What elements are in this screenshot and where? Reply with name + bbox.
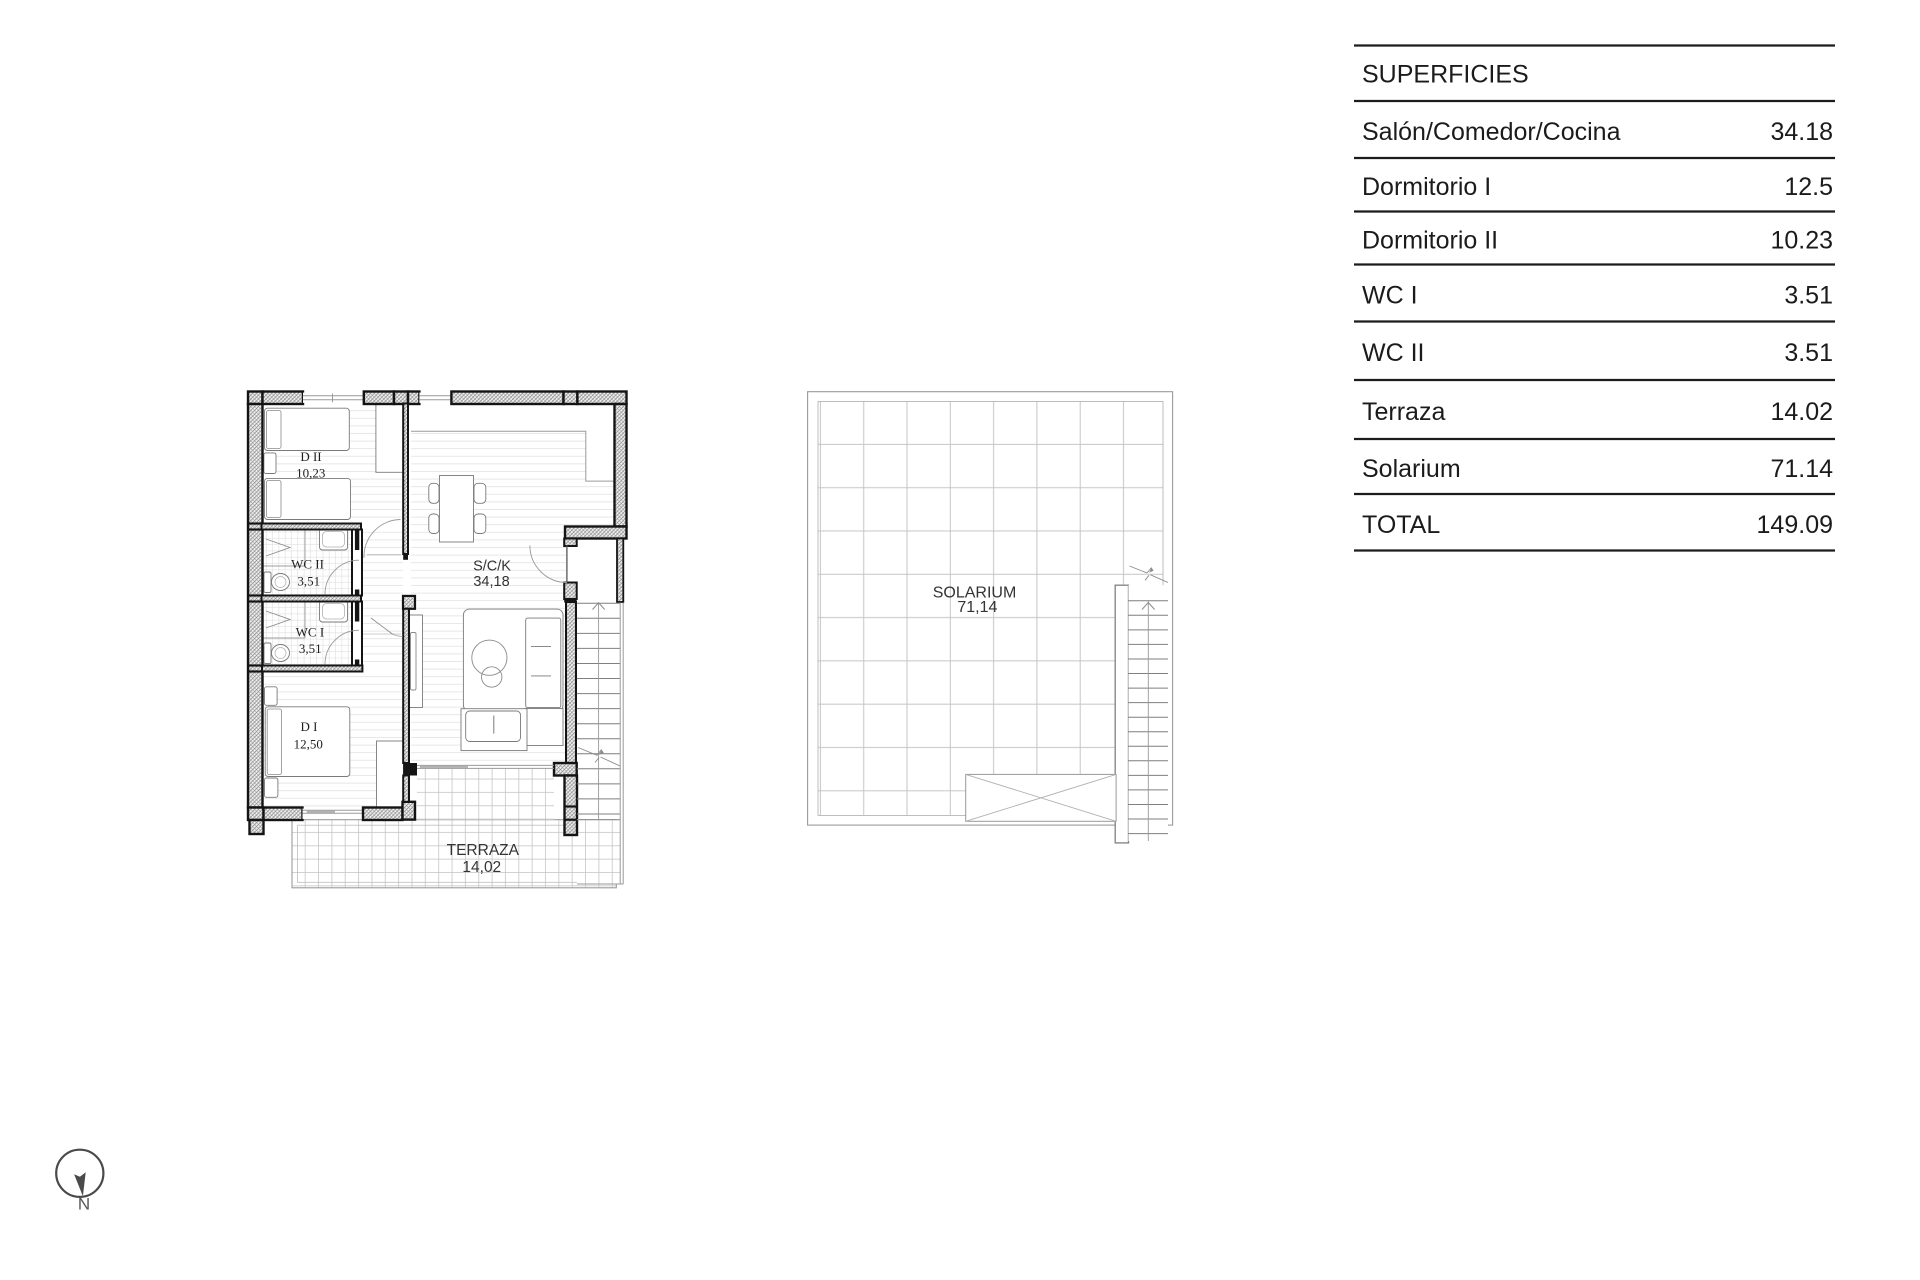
svg-text:34.18: 34.18 [1770, 118, 1833, 146]
svg-text:WC II: WC II [1362, 339, 1425, 367]
svg-text:S/C/K: S/C/K [473, 559, 511, 575]
svg-text:3,51: 3,51 [299, 641, 322, 656]
svg-text:14.02: 14.02 [1770, 398, 1833, 426]
svg-text:12,50: 12,50 [294, 737, 323, 752]
svg-text:Salón/Comedor/Cocina: Salón/Comedor/Cocina [1362, 118, 1621, 146]
svg-text:3,51: 3,51 [297, 574, 320, 589]
svg-text:D I: D I [301, 719, 318, 734]
svg-text:TERRAZA: TERRAZA [447, 842, 520, 859]
svg-text:Solarium: Solarium [1362, 455, 1461, 483]
svg-text:71.14: 71.14 [1770, 455, 1833, 483]
svg-text:34,18: 34,18 [473, 574, 509, 590]
svg-text:WC II: WC II [291, 557, 324, 572]
svg-text:12.5: 12.5 [1784, 173, 1833, 201]
svg-text:149.09: 149.09 [1757, 511, 1833, 539]
svg-text:TOTAL: TOTAL [1362, 511, 1440, 539]
svg-text:D II: D II [300, 449, 321, 464]
svg-text:10,23: 10,23 [296, 466, 325, 481]
svg-text:14,02: 14,02 [462, 859, 501, 876]
svg-text:71,14: 71,14 [957, 599, 997, 616]
svg-text:3.51: 3.51 [1784, 339, 1833, 367]
svg-text:SUPERFICIES: SUPERFICIES [1362, 61, 1529, 89]
svg-text:Dormitorio I: Dormitorio I [1362, 173, 1491, 201]
svg-text:WC I: WC I [296, 625, 325, 640]
svg-text:WC I: WC I [1362, 282, 1418, 310]
svg-text:N: N [78, 1195, 90, 1214]
svg-text:Dormitorio II: Dormitorio II [1362, 227, 1498, 255]
svg-text:10.23: 10.23 [1770, 227, 1833, 255]
svg-text:3.51: 3.51 [1784, 282, 1833, 310]
svg-text:Terraza: Terraza [1362, 398, 1445, 426]
